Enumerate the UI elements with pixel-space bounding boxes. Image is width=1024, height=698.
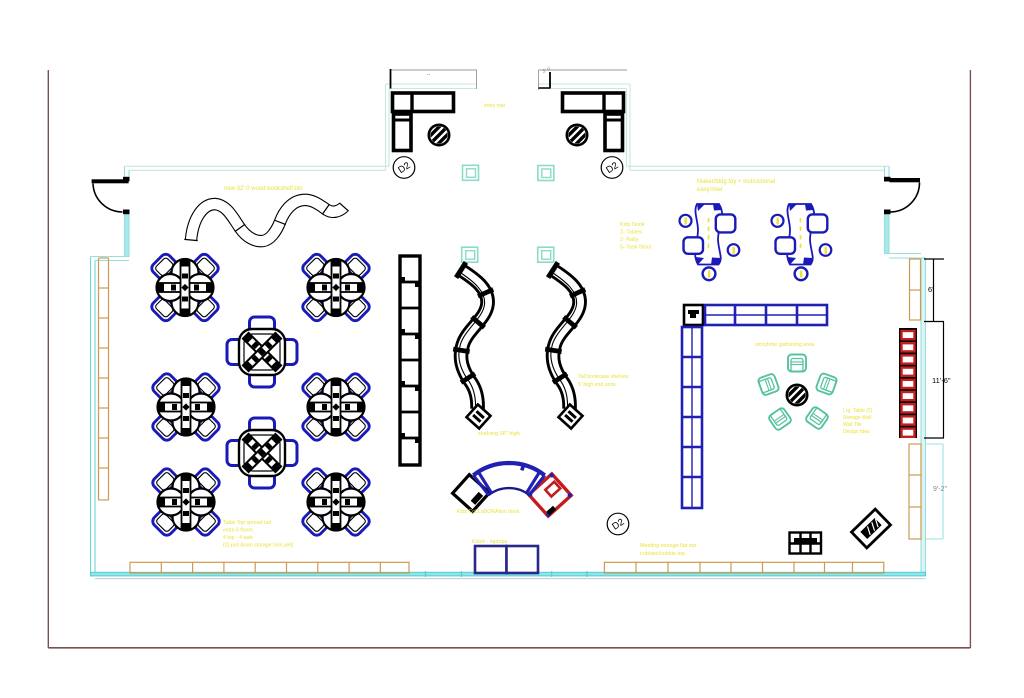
svg-text:2- Tables: 2- Tables — [620, 230, 642, 236]
svg-text:shelving 36" high: shelving 36" high — [478, 431, 520, 437]
svg-text:Kiosk - laptops: Kiosk - laptops — [472, 539, 508, 545]
svg-text:Storage Wall: Storage Wall — [843, 415, 871, 421]
svg-text:11'-6": 11'-6" — [932, 376, 951, 385]
svg-text:Design Idea: Design Idea — [843, 429, 870, 435]
svg-text:6': 6' — [928, 285, 934, 294]
svg-text:Table Top spread out: Table Top spread out — [223, 520, 272, 526]
svg-text:9'-2": 9'-2" — [933, 486, 947, 493]
svg-text:Wall Tile: Wall Tile — [843, 422, 862, 428]
svg-text:storytime gathering area: storytime gathering area — [755, 342, 815, 348]
svg-text:Kidz Nook: Kidz Nook — [620, 222, 645, 228]
svg-text:5- Task Stool: 5- Task Stool — [620, 245, 651, 251]
svg-text:4 top - 4 task: 4 top - 4 task — [223, 535, 253, 541]
svg-text:new 32' 0 wood bookshelf bin: new 32' 0 wood bookshelf bin — [224, 186, 303, 192]
svg-text:Lrg. Table (2): Lrg. Table (2) — [843, 408, 873, 414]
svg-text:5' high end units: 5' high end units — [578, 382, 616, 388]
svg-text:Kidz CoLLaBORAtion desk: Kidz CoLLaBORAtion desk — [457, 509, 520, 515]
svg-text:entry mat: entry mat — [484, 103, 505, 109]
svg-text:..: .. — [427, 71, 431, 77]
svg-text:easy/riser: easy/riser — [697, 187, 723, 193]
svg-text:Maker/bldg toy + instructiona: Maker/bldg toy + instructional — [697, 179, 775, 185]
svg-text:(2) pull down storage (viol,y: (2) pull down storage (viol,yell) — [223, 543, 294, 549]
svg-text:Meeting storage flat top: Meeting storage flat top — [640, 543, 696, 549]
svg-text:Tall bookcase shelves: Tall bookcase shelves — [578, 374, 629, 380]
svg-text:cubbies/cubbie top: cubbies/cubbie top — [640, 551, 685, 557]
svg-text:extra 6 floors: extra 6 floors — [223, 528, 253, 534]
svg-text:2- Rally: 2- Rally — [620, 237, 639, 243]
